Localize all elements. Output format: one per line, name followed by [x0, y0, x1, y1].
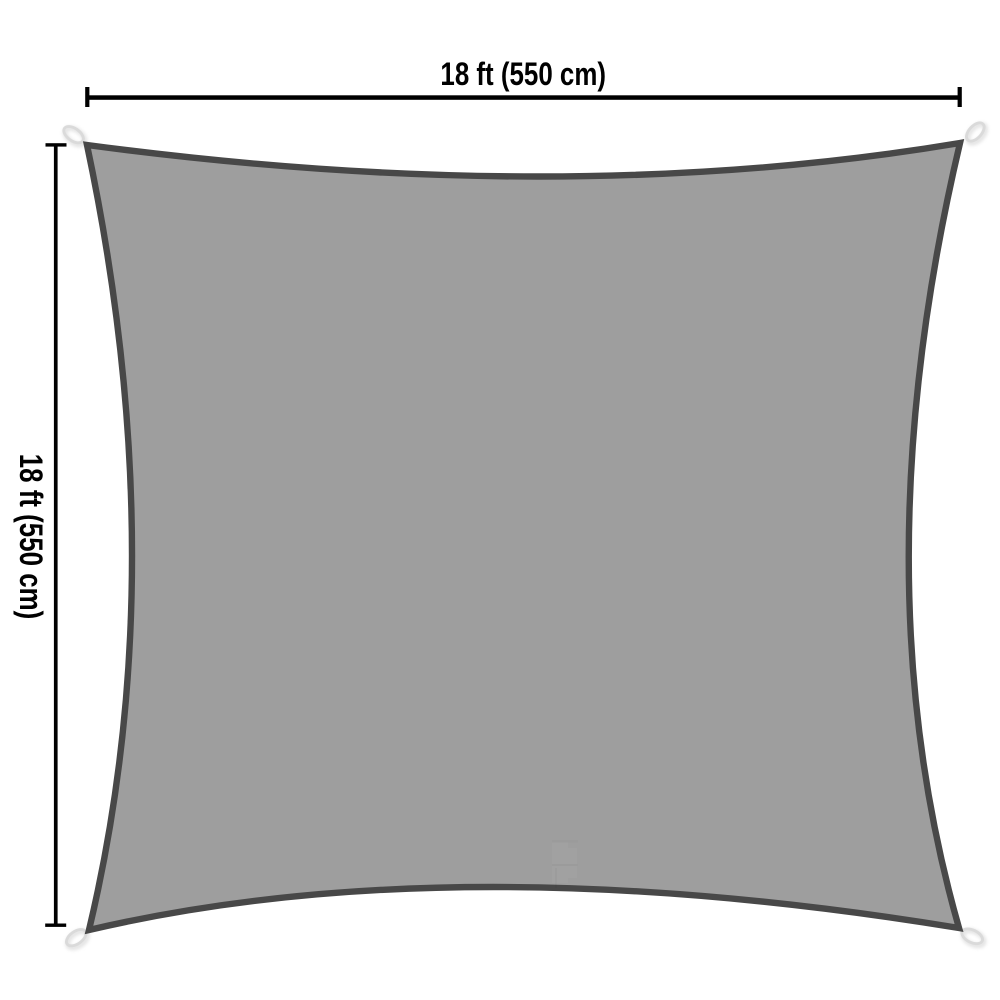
svg-text:18 ft (550 cm): 18 ft (550 cm) [12, 454, 49, 620]
svg-text:18 ft (550 cm): 18 ft (550 cm) [440, 56, 606, 93]
